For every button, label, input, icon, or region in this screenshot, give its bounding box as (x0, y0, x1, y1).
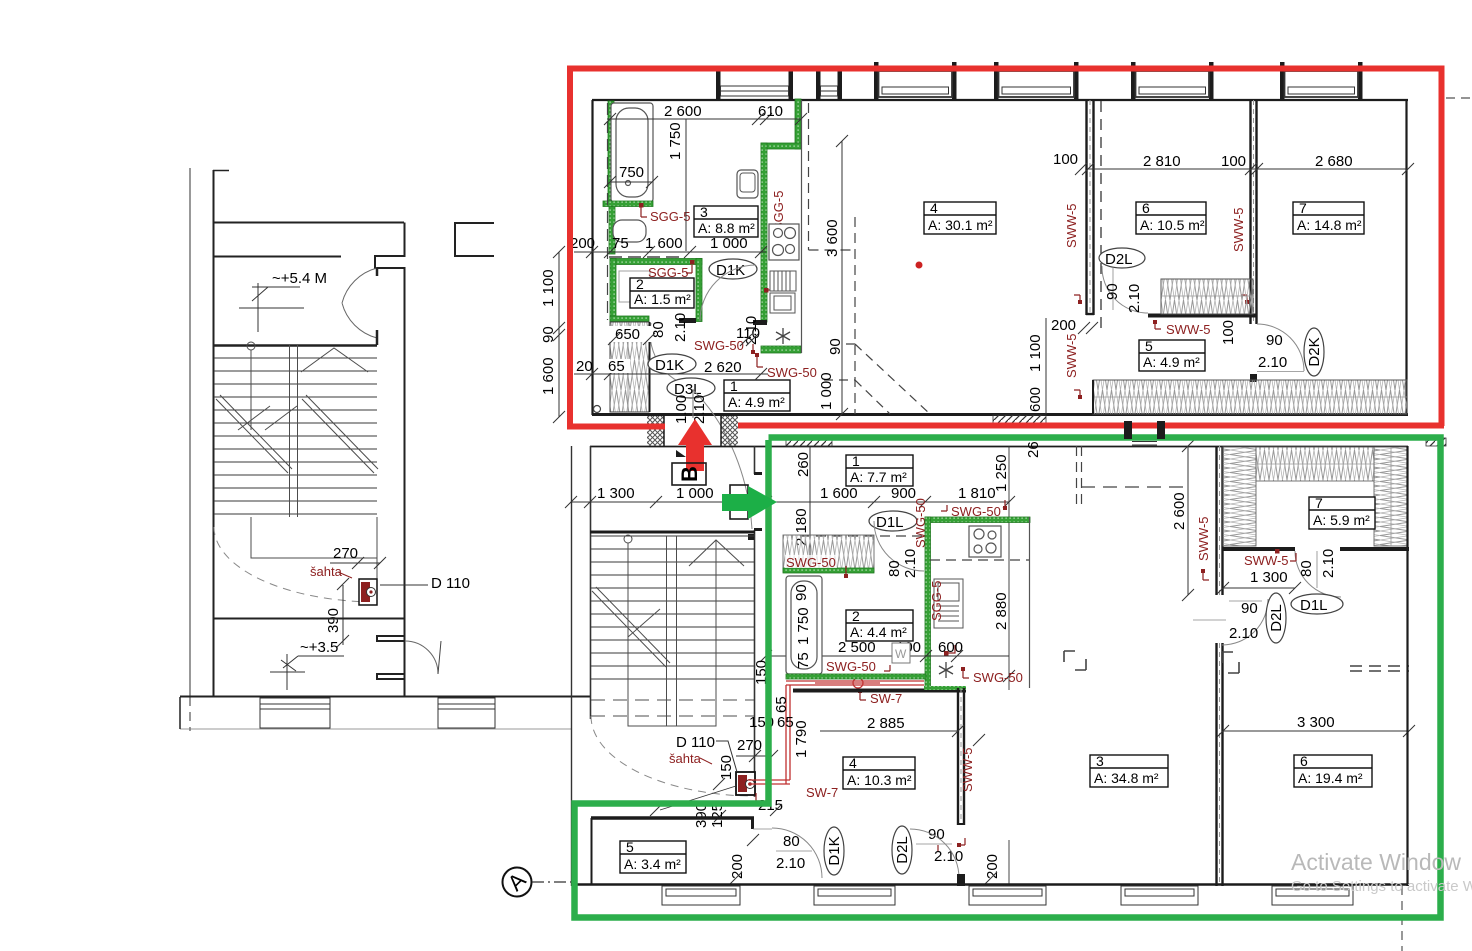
svg-text:1 000: 1 000 (676, 485, 714, 502)
svg-text:A: 3.4 m²: A: 3.4 m² (624, 856, 681, 872)
svg-text:2.10: 2.10 (1320, 549, 1337, 578)
svg-text:2: 2 (852, 608, 860, 624)
svg-text:2.10: 2.10 (1229, 625, 1258, 642)
svg-text:270: 270 (333, 545, 358, 562)
svg-text:80: 80 (783, 833, 800, 850)
svg-text:1: 1 (852, 453, 860, 469)
svg-text:150: 150 (718, 755, 735, 780)
svg-text:1 250: 1 250 (993, 454, 1010, 492)
svg-text:SGG-5: SGG-5 (929, 581, 944, 621)
svg-text:1 300: 1 300 (597, 485, 635, 502)
svg-text:2 810: 2 810 (1143, 153, 1181, 170)
svg-text:90: 90 (1266, 332, 1283, 349)
svg-text:260: 260 (795, 452, 812, 477)
svg-text:1 810: 1 810 (958, 485, 996, 502)
svg-text:5: 5 (626, 839, 634, 855)
svg-text:2.10: 2.10 (934, 848, 963, 865)
svg-text:90: 90 (1104, 283, 1121, 300)
svg-text:90: 90 (540, 326, 557, 343)
svg-text:600: 600 (938, 639, 963, 656)
svg-text:7: 7 (1299, 200, 1307, 216)
svg-text:Activate Window: Activate Window (1291, 849, 1461, 875)
svg-text:90: 90 (827, 338, 844, 355)
svg-text:90: 90 (793, 584, 810, 601)
svg-text:A: 4.9 m²: A: 4.9 m² (728, 394, 785, 410)
svg-text:D2L: D2L (894, 836, 911, 864)
svg-text:SWG-50: SWG-50 (786, 555, 836, 570)
svg-text:6: 6 (1300, 753, 1308, 769)
svg-text:200: 200 (729, 854, 746, 879)
svg-text:šahta: šahta (669, 751, 702, 766)
svg-text:A: 4.4 m²: A: 4.4 m² (850, 624, 907, 640)
svg-text:20: 20 (576, 358, 593, 375)
svg-text:610: 610 (758, 103, 783, 120)
svg-text:5: 5 (1145, 338, 1153, 354)
svg-text:A: 8.8 m²: A: 8.8 m² (698, 220, 755, 236)
svg-text:SWW-5: SWW-5 (1064, 333, 1079, 378)
svg-text:A: 10.3 m²: A: 10.3 m² (847, 772, 912, 788)
svg-text:2.10: 2.10 (672, 313, 689, 342)
svg-text:1 000: 1 000 (818, 372, 835, 410)
svg-text:2 680: 2 680 (1315, 153, 1353, 170)
svg-text:2.10: 2.10 (1258, 354, 1287, 371)
svg-text:A: 1.5 m²: A: 1.5 m² (634, 291, 691, 307)
svg-text:3: 3 (700, 204, 708, 220)
svg-text:A: 10.5 m²: A: 10.5 m² (1140, 217, 1205, 233)
svg-text:65: 65 (608, 358, 625, 375)
svg-text:1 600: 1 600 (645, 235, 683, 252)
svg-text:A: 34.8 m²: A: 34.8 m² (1094, 770, 1159, 786)
svg-text:65: 65 (777, 714, 794, 731)
svg-text:65: 65 (773, 696, 790, 713)
svg-text:90: 90 (1241, 600, 1258, 617)
svg-text:2.10: 2.10 (691, 395, 708, 424)
svg-text:750: 750 (619, 164, 644, 181)
svg-text:SW-7: SW-7 (870, 691, 902, 706)
svg-text:SWW-5: SWW-5 (1064, 203, 1079, 248)
svg-text:1 750: 1 750 (667, 122, 684, 160)
svg-text:4: 4 (930, 200, 938, 216)
svg-text:A: 19.4 m²: A: 19.4 m² (1298, 770, 1363, 786)
svg-text:~+3.5: ~+3.5 (300, 639, 338, 656)
svg-text:1 300: 1 300 (1250, 569, 1288, 586)
svg-text:A: 5.9 m²: A: 5.9 m² (1313, 512, 1370, 528)
svg-text:1.00: 1.00 (673, 395, 690, 424)
svg-text:2: 2 (636, 276, 644, 292)
svg-text:75: 75 (795, 652, 812, 669)
svg-text:D1K: D1K (826, 836, 843, 865)
svg-text:A: 7.7 m²: A: 7.7 m² (850, 469, 907, 485)
svg-text:SW-7: SW-7 (806, 785, 838, 800)
svg-text:100: 100 (1053, 151, 1078, 168)
svg-text:A: 14.8 m²: A: 14.8 m² (1297, 217, 1362, 233)
svg-text:2.10: 2.10 (1126, 284, 1143, 313)
svg-text:D1L: D1L (1300, 597, 1328, 614)
svg-text:D2K: D2K (1306, 337, 1323, 366)
svg-text:3: 3 (1096, 753, 1104, 769)
svg-text:D1K: D1K (655, 357, 684, 374)
svg-text:1: 1 (730, 378, 738, 394)
svg-text:SWG-50: SWG-50 (826, 659, 876, 674)
svg-text:SWG-50: SWG-50 (767, 365, 817, 380)
svg-text:200: 200 (984, 854, 1001, 879)
svg-text:75: 75 (612, 235, 629, 252)
svg-text:1 100: 1 100 (1027, 334, 1044, 372)
svg-text:D2L: D2L (1105, 251, 1133, 268)
svg-text:2 600: 2 600 (1171, 492, 1188, 530)
svg-text:6: 6 (1142, 200, 1150, 216)
svg-text:šahta: šahta (310, 564, 343, 579)
svg-text:SWG-50: SWG-50 (973, 670, 1023, 685)
svg-text:B: B (677, 466, 702, 482)
svg-text:1 600: 1 600 (820, 485, 858, 502)
svg-text:~+5.4 M: ~+5.4 M (272, 270, 327, 287)
svg-text:7: 7 (1315, 495, 1323, 511)
svg-text:80: 80 (1298, 560, 1315, 577)
svg-text:SWW-5: SWW-5 (1166, 322, 1211, 337)
svg-text:2.10: 2.10 (902, 549, 919, 578)
svg-text:200: 200 (1051, 317, 1076, 334)
svg-text:3 300: 3 300 (1297, 714, 1335, 731)
svg-text:SWW-5: SWW-5 (960, 747, 975, 792)
svg-text:2.10: 2.10 (776, 855, 805, 872)
svg-text:D 110: D 110 (431, 575, 470, 592)
svg-text:A: 30.1 m²: A: 30.1 m² (928, 217, 993, 233)
svg-text:2 620: 2 620 (704, 359, 742, 376)
svg-text:600: 600 (1027, 387, 1044, 412)
svg-text:3 600: 3 600 (824, 219, 841, 257)
svg-text:SWW-5: SWW-5 (1196, 516, 1211, 561)
svg-text:D2L: D2L (1268, 604, 1285, 632)
svg-text:2 885: 2 885 (867, 715, 905, 732)
svg-text:1 000: 1 000 (710, 235, 748, 252)
svg-text:270: 270 (737, 737, 762, 754)
svg-text:26: 26 (1025, 441, 1042, 458)
svg-text:A: 4.9 m²: A: 4.9 m² (1143, 354, 1200, 370)
svg-text:1 790: 1 790 (793, 720, 810, 758)
svg-text:100: 100 (1221, 153, 1246, 170)
svg-text:D1L: D1L (876, 514, 904, 531)
svg-text:SGG-5: SGG-5 (650, 209, 690, 224)
svg-text:1 600: 1 600 (540, 357, 557, 395)
svg-text:2 600: 2 600 (664, 103, 702, 120)
svg-text:1 100: 1 100 (540, 269, 557, 307)
svg-text:W: W (895, 647, 907, 661)
svg-text:200: 200 (570, 235, 595, 252)
svg-text:SWW-5: SWW-5 (1244, 553, 1289, 568)
svg-text:100: 100 (1220, 320, 1237, 345)
svg-text:80: 80 (886, 560, 903, 577)
svg-text:SWW-5: SWW-5 (1231, 207, 1246, 252)
svg-text:2 880: 2 880 (993, 592, 1010, 630)
svg-text:D 110: D 110 (676, 734, 715, 751)
svg-text:Go to Settings to activate W: Go to Settings to activate W (1291, 878, 1472, 895)
svg-text:1 750: 1 750 (795, 607, 812, 645)
svg-text:390: 390 (325, 608, 342, 633)
svg-text:4: 4 (849, 755, 857, 771)
